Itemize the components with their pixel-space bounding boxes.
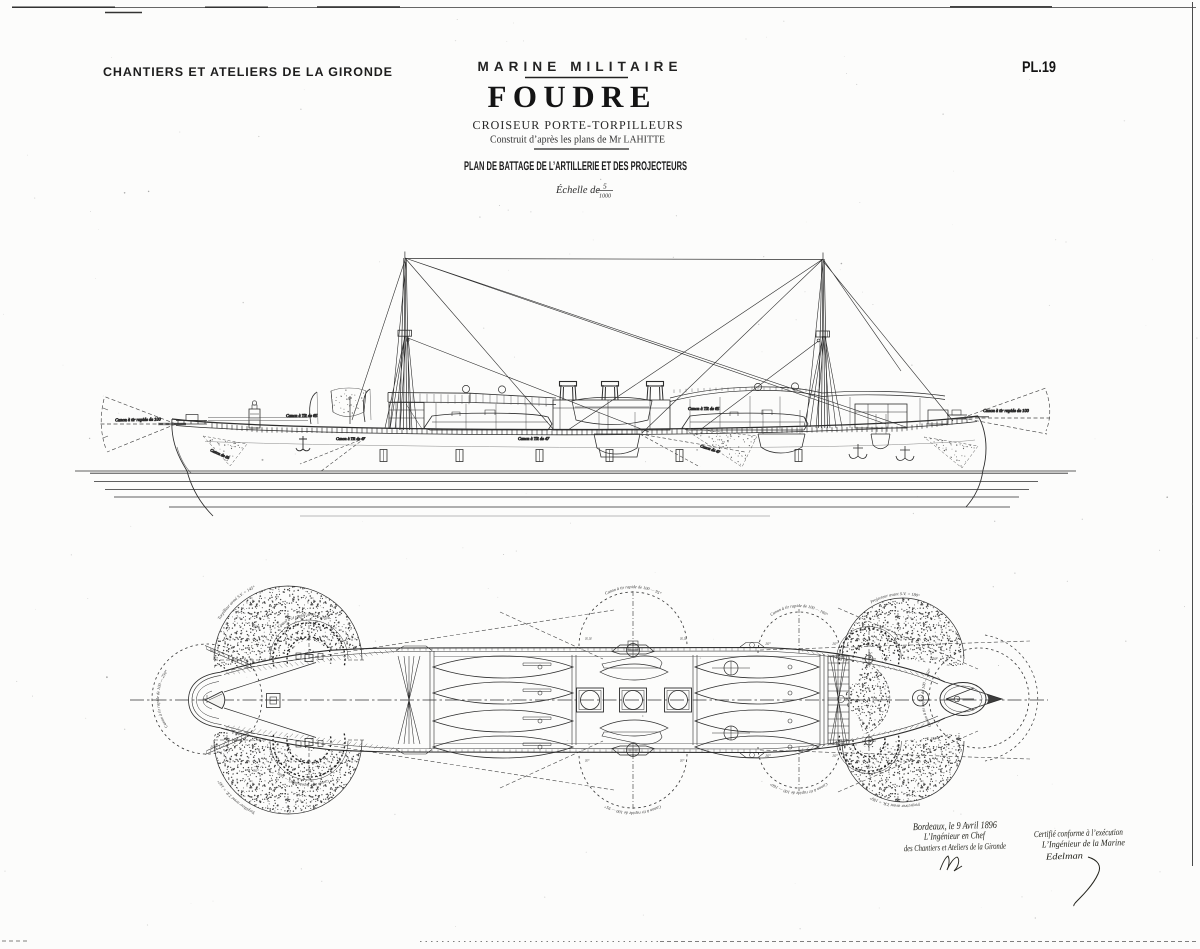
svg-text:Canon à tir rapide de 100: Canon à tir rapide de 100 [115,417,162,423]
svg-text:10°: 10° [765,753,771,758]
svg-text:N°: N° [329,626,335,631]
svg-text:PLAN DE BATTAGE DE L’ARTILLERI: PLAN DE BATTAGE DE L’ARTILLERIE ET DES P… [464,159,687,173]
svg-text:CROISEUR PORTE-TORPILLEURS: CROISEUR PORTE-TORPILLEURS [473,118,683,132]
svg-text:Échelle de: Échelle de [555,183,600,196]
svg-text:Canon à tir rapide de 100 — 25: Canon à tir rapide de 100 — 250° [155,669,169,729]
svg-text:30°: 30° [253,768,259,773]
svg-text:des Chantiers et Ateliers de l: des Chantiers et Ateliers de la Gironde [904,841,1006,854]
svg-text:5: 5 [603,182,607,191]
svg-text:Canon à TR de 65: Canon à TR de 65 [286,413,318,418]
svg-text:PL.19: PL.19 [1022,59,1056,76]
svg-text:30°: 30° [253,624,259,629]
svg-text:1000: 1000 [599,194,611,200]
svg-text:10°: 10° [832,753,838,758]
svg-text:N.N: N.N [679,636,687,641]
svg-text:L’Ingénieur de la Marine: L’Ingénieur de la Marine [1041,837,1125,849]
svg-text:N°: N° [679,758,685,763]
svg-text:Edelman: Edelman [1045,850,1084,861]
svg-text:150°: 150° [930,656,938,661]
svg-text:N°: N° [329,766,335,771]
svg-text:10°: 10° [765,641,771,646]
svg-text:N.N: N.N [584,636,592,641]
svg-text:Construit d’après les plans de: Construit d’après les plans de Mr LAHITT… [490,135,665,146]
svg-text:Canon à TR de 47: Canon à TR de 47 [518,436,550,441]
svg-text:10°: 10° [832,641,838,646]
svg-text:N°: N° [584,758,590,763]
svg-text:CHANTIERS ET ATELIERS DE LA GI: CHANTIERS ET ATELIERS DE LA GIRONDE [103,65,392,79]
svg-text:Canon à tir rapide de 100: Canon à tir rapide de 100 [983,408,1030,413]
svg-text:150°: 150° [930,736,938,741]
svg-text:Canon à TR de 65: Canon à TR de 65 [688,406,720,411]
svg-text:10°: 10° [210,744,216,749]
svg-text:FOUDRE: FOUDRE [488,79,651,114]
svg-text:10°: 10° [210,648,216,653]
svg-text:MARINE MILITAIRE: MARINE MILITAIRE [478,59,678,74]
svg-text:Canon à TR de 47: Canon à TR de 47 [336,436,366,441]
